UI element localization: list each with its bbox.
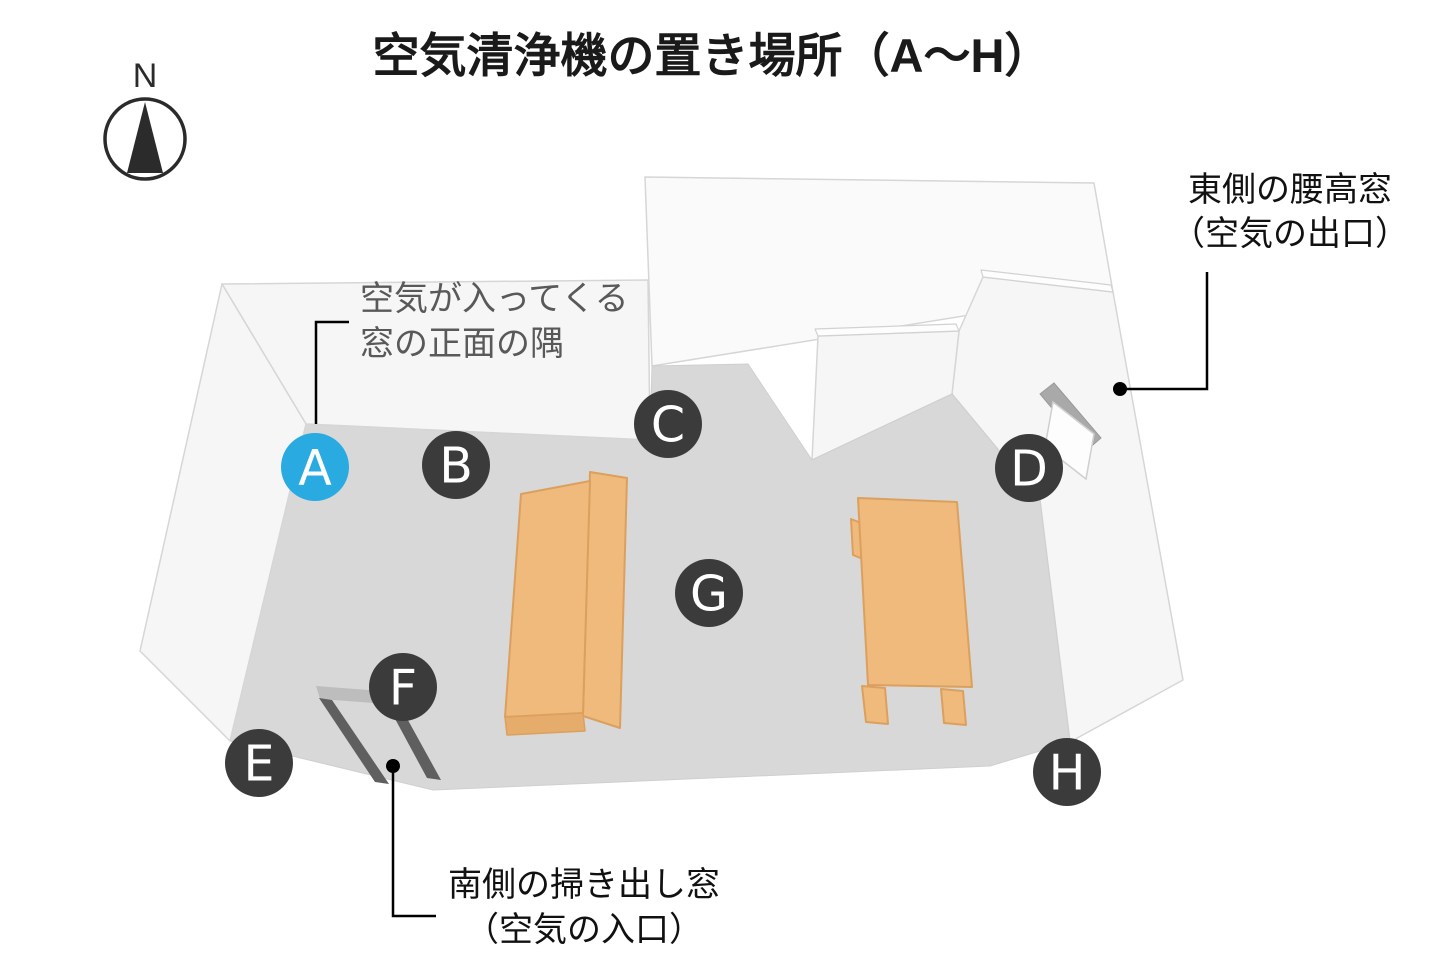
east-window-note-line2: （空気の出口）: [1171, 215, 1409, 253]
marker-f-label: F: [389, 660, 417, 717]
marker-g-label: G: [690, 566, 728, 623]
marker-e-label: E: [244, 736, 275, 793]
east-window-leader-line: [1122, 272, 1207, 389]
marker-c-label: C: [651, 397, 685, 454]
marker-a-label: A: [298, 440, 332, 497]
marker-f[interactable]: F: [369, 653, 437, 721]
sofa-base: [505, 713, 585, 735]
marker-c[interactable]: C: [634, 390, 702, 458]
room-diagram: A B C D E F G H N: [0, 0, 1441, 980]
sofa: [505, 472, 627, 735]
south-window-leader-dot: [386, 759, 400, 773]
marker-h[interactable]: H: [1033, 738, 1101, 806]
marker-a[interactable]: A: [281, 433, 349, 501]
south-window-note-line2: （空気の入口）: [465, 911, 703, 949]
marker-d[interactable]: D: [995, 434, 1063, 502]
marker-h-label: H: [1049, 745, 1086, 802]
compass-icon: N: [105, 57, 185, 179]
table-front-right-leg: [941, 689, 966, 725]
corner-note-line1: 空気が入ってくる: [360, 280, 629, 318]
south-window-note-line1: 南側の掃き出し窓: [448, 866, 720, 904]
compass-needle: [127, 102, 163, 173]
marker-e[interactable]: E: [225, 729, 293, 797]
page-title: 空気清浄機の置き場所（A〜H）: [373, 29, 1052, 82]
marker-b[interactable]: B: [422, 431, 490, 499]
corner-note-line2: 窓の正面の隅: [360, 325, 564, 363]
marker-b-label: B: [439, 438, 473, 495]
marker-g[interactable]: G: [675, 559, 743, 627]
table-top: [858, 498, 972, 687]
table-front-left-leg: [862, 686, 888, 724]
east-window-note-line1: 東側の腰高窓: [1188, 171, 1392, 209]
compass-north-label: N: [133, 57, 158, 95]
marker-d-label: D: [1010, 441, 1048, 498]
east-window-leader-dot: [1113, 382, 1127, 396]
